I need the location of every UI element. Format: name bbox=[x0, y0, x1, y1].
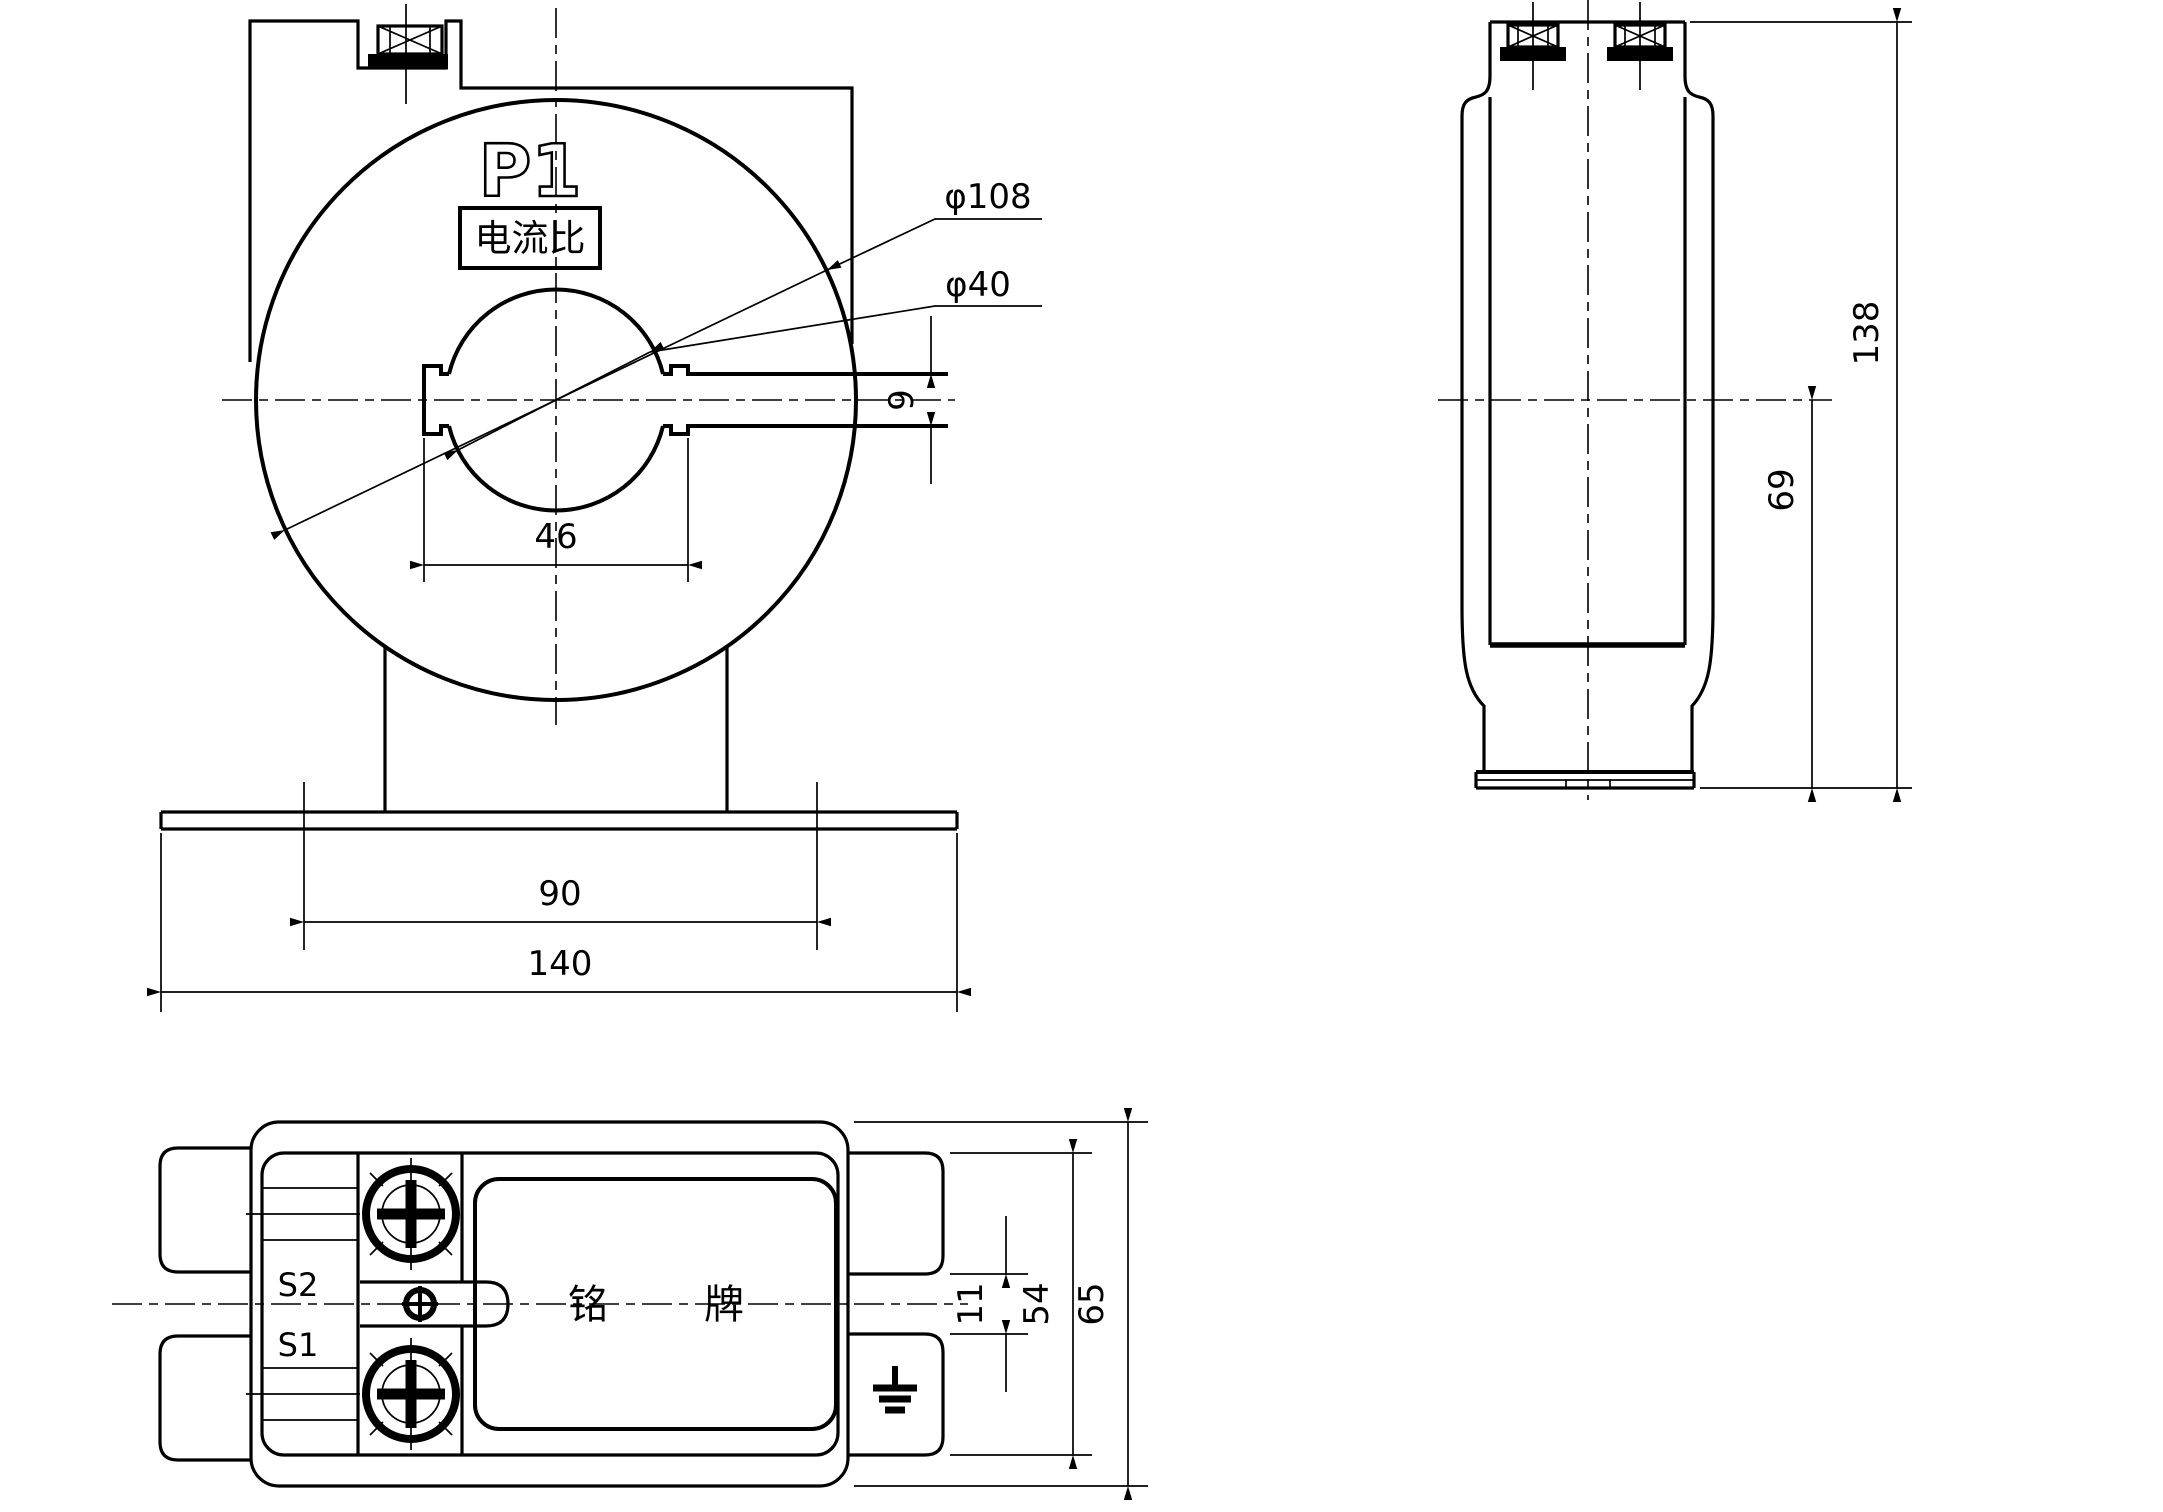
engineering-drawing-page: P1 电流比 φ108 φ40 9 bbox=[0, 0, 2163, 1512]
nameplate-label: 铭牌 bbox=[568, 1282, 840, 1328]
dim-half-height: 69 bbox=[1762, 400, 1812, 788]
dim-mount-span: 90 bbox=[304, 782, 817, 950]
front-pedestal-base bbox=[161, 648, 957, 829]
terminal-screw-s2 bbox=[366, 1158, 456, 1270]
dim-inner-width-text: 54 bbox=[1017, 1282, 1057, 1325]
dim-mount-span-text: 90 bbox=[538, 874, 581, 914]
dim-inner-width: 54 bbox=[1017, 1153, 1073, 1455]
side-view: 138 69 bbox=[1438, 0, 1912, 800]
dim-outer-diameter: φ108 bbox=[285, 177, 1042, 530]
side-left-outline bbox=[1462, 22, 1490, 772]
ratio-box-label: 电流比 bbox=[475, 217, 586, 260]
side-screw-left bbox=[1500, 2, 1566, 90]
p1-label: P1 bbox=[479, 129, 582, 213]
bottom-right-tab-top bbox=[848, 1153, 943, 1274]
front-terminal-screw bbox=[368, 4, 448, 104]
dim-half-height-text: 69 bbox=[1762, 468, 1802, 511]
screw-washer bbox=[368, 54, 448, 69]
front-view: P1 电流比 φ108 φ40 9 bbox=[161, 4, 1042, 1012]
dim-overall-height-text: 138 bbox=[1847, 301, 1887, 366]
side-base-plate bbox=[1476, 772, 1694, 788]
bottom-right-tab-bottom bbox=[848, 1334, 943, 1455]
terminal-label-s2: S2 bbox=[278, 1266, 319, 1304]
side-screw-right bbox=[1607, 2, 1673, 90]
dim-overall-width: 65 bbox=[1072, 1122, 1128, 1486]
dim-overall-width-text: 65 bbox=[1072, 1282, 1112, 1325]
dim-tab-gap-text: 11 bbox=[951, 1282, 991, 1325]
dim-outer-diameter-text: φ108 bbox=[944, 177, 1031, 217]
bottom-left-tab-top bbox=[160, 1148, 251, 1272]
dim-tab-gap: 11 bbox=[951, 1216, 1006, 1392]
dim-hole-diameter: φ40 bbox=[458, 265, 1042, 450]
dim-slot-width-text: 46 bbox=[534, 517, 577, 557]
ground-icon bbox=[873, 1366, 917, 1410]
bottom-left-tab-bottom bbox=[160, 1336, 251, 1460]
dim-slot-height-text: 9 bbox=[882, 389, 922, 411]
bottom-view: S2 S1 铭牌 11 bbox=[112, 1122, 1148, 1486]
dim-base-width-text: 140 bbox=[528, 944, 593, 984]
side-right-outline bbox=[1685, 22, 1713, 772]
dim-hole-diameter-text: φ40 bbox=[945, 265, 1011, 305]
dim-overall-height: 138 bbox=[1847, 22, 1897, 788]
terminal-label-s1: S1 bbox=[278, 1326, 319, 1364]
terminal-screw-s1 bbox=[366, 1338, 456, 1450]
